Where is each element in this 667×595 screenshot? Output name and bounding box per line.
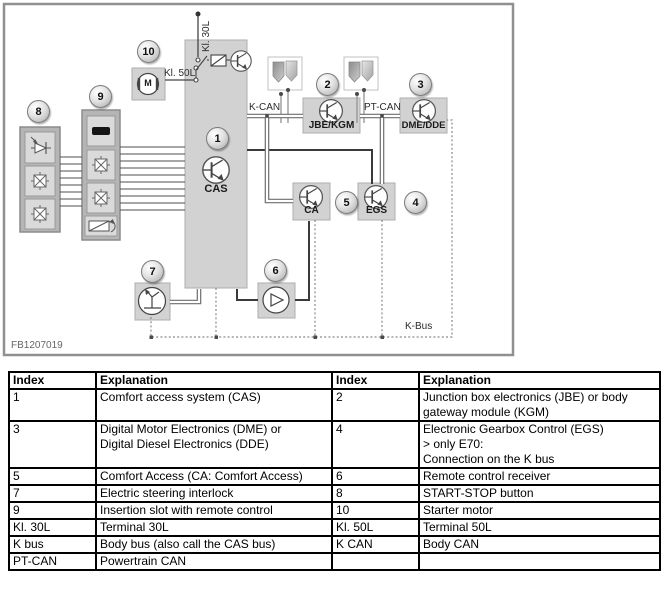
table-row: Kl. 30L Terminal 30L Kl. 50L Terminal 50…	[9, 519, 660, 536]
pt-can-label: PT-CAN	[364, 103, 401, 113]
explanation-cell: Comfort access system (CAS)	[96, 389, 332, 421]
explanation-cell: Terminal 50L	[419, 519, 660, 536]
index-cell: 6	[332, 468, 419, 485]
explanation-cell: Comfort Access (CA: Comfort Access)	[96, 468, 332, 485]
badge-3: 3	[409, 73, 432, 96]
key-fob-icon	[268, 57, 302, 90]
legend-table: Index Explanation Index Explanation 1 Co…	[8, 371, 661, 571]
transistor-icon	[320, 100, 343, 123]
table-row: PT-CAN Powertrain CAN	[9, 553, 660, 570]
badge-5: 5	[335, 191, 358, 214]
key-fob-icon	[344, 57, 378, 90]
start-stop-button	[20, 127, 60, 232]
explanation-cell: Body CAN	[419, 536, 660, 553]
index-cell: 8	[332, 485, 419, 502]
egs-label: EGS	[358, 206, 395, 216]
table-row: K bus Body bus (also call the CAS bus) K…	[9, 536, 660, 553]
index-cell: 1	[9, 389, 96, 421]
column-header: Explanation	[419, 372, 660, 389]
lamp-icon	[92, 189, 110, 207]
explanation-cell	[419, 553, 660, 570]
lamp-icon	[31, 205, 49, 223]
index-cell: Kl. 50L	[332, 519, 419, 536]
page: Kl. 30L Kl. 50L K-CAN PT-CAN K-Bus JBE/K…	[0, 0, 667, 595]
badge-4: 4	[404, 191, 427, 214]
explanation-cell: START-STOP button	[419, 485, 660, 502]
transistor-icon	[203, 157, 229, 183]
explanation-cell: Powertrain CAN	[96, 553, 332, 570]
receiver-icon	[263, 287, 289, 313]
badge-7: 7	[141, 260, 164, 283]
explanation-cell: Digital Motor Electronics (DME) or Digit…	[96, 421, 332, 468]
explanation-cell: Electronic Gearbox Control (EGS) > only …	[419, 421, 660, 468]
index-cell: 3	[9, 421, 96, 468]
badge-2: 2	[316, 73, 339, 96]
table-row: 1 Comfort access system (CAS) 2 Junction…	[9, 389, 660, 421]
index-cell: PT-CAN	[9, 553, 96, 570]
steering-interlock-icon	[139, 288, 166, 315]
motor-m-label: M	[142, 79, 154, 88]
table-header-row: Index Explanation Index Explanation	[9, 372, 660, 389]
index-cell: 10	[332, 502, 419, 519]
explanation-cell: Remote control receiver	[419, 468, 660, 485]
explanation-cell: Starter motor	[419, 502, 660, 519]
explanation-cell: Terminal 30L	[96, 519, 332, 536]
index-cell: K CAN	[332, 536, 419, 553]
index-cell: 7	[9, 485, 96, 502]
key-slot-icon	[92, 127, 110, 135]
column-header: Index	[332, 372, 419, 389]
cas-label: CAS	[196, 184, 236, 195]
insertion-slot	[82, 110, 120, 240]
badge-1: 1	[206, 127, 229, 150]
k-bus-label: K-Bus	[405, 322, 432, 332]
badge-9: 9	[89, 85, 112, 108]
table-row: 7 Electric steering interlock 8 START-ST…	[9, 485, 660, 502]
index-cell: 4	[332, 421, 419, 468]
figure-id: FB1207019	[11, 341, 63, 351]
explanation-cell: Body bus (also call the CAS bus)	[96, 536, 332, 553]
index-cell: 2	[332, 389, 419, 421]
index-cell: 9	[9, 502, 96, 519]
badge-10: 10	[137, 40, 160, 63]
explanation-cell: Electric steering interlock	[96, 485, 332, 502]
ca-label: CA	[293, 206, 330, 216]
terminal-30l-label: Kl. 30L	[202, 21, 212, 52]
transistor-icon	[413, 100, 436, 123]
index-cell: 5	[9, 468, 96, 485]
lamp-icon	[92, 156, 110, 174]
index-cell: K bus	[9, 536, 96, 553]
table-row: 3 Digital Motor Electronics (DME) or Dig…	[9, 421, 660, 468]
badge-8: 8	[27, 100, 50, 123]
column-header: Index	[9, 372, 96, 389]
badge-6: 6	[264, 259, 287, 282]
dme-dde-label: DME/DDE	[400, 121, 447, 131]
lamp-icon	[31, 172, 49, 190]
k-can-label: K-CAN	[249, 103, 280, 113]
table-row: 9 Insertion slot with remote control 10 …	[9, 502, 660, 519]
column-header: Explanation	[96, 372, 332, 389]
explanation-cell: Junction box electronics (JBE) or body g…	[419, 389, 660, 421]
table-row: 5 Comfort Access (CA: Comfort Access) 6 …	[9, 468, 660, 485]
index-cell: Kl. 30L	[9, 519, 96, 536]
transistor-icon	[231, 51, 251, 71]
terminal-50l-label: Kl. 50L	[164, 69, 195, 79]
explanation-cell: Insertion slot with remote control	[96, 502, 332, 519]
index-cell	[332, 553, 419, 570]
jbe-kgm-label: JBE/KGM	[303, 121, 360, 131]
